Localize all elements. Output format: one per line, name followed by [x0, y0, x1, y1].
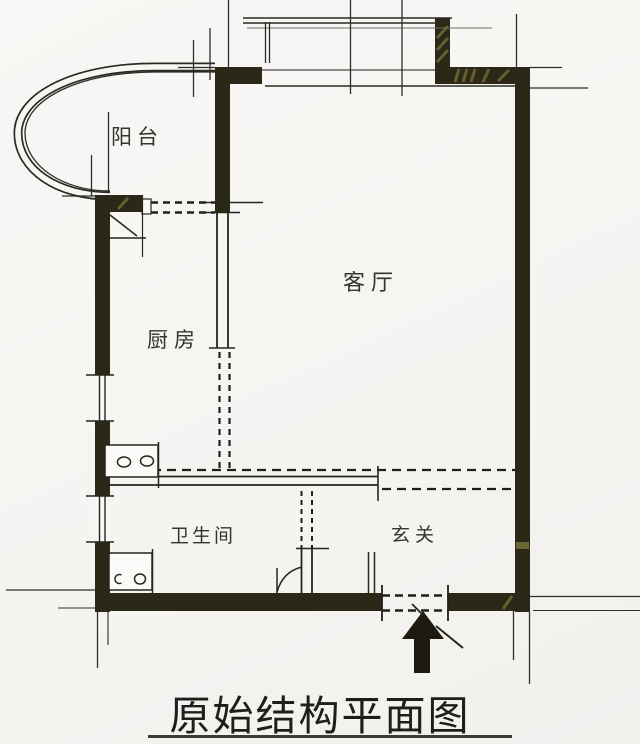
- wall-center-vertical: [215, 67, 230, 212]
- bathroom-door-swing: [277, 567, 302, 593]
- room-label-balcony: 阳台: [111, 127, 163, 148]
- bathroom-vanity: [109, 549, 153, 595]
- room-label-living-room: 客厅: [343, 272, 399, 294]
- wall-bottom-right: [448, 593, 530, 611]
- room-label-kitchen: 厨房: [147, 330, 201, 351]
- floor-plan-canvas: [0, 0, 640, 744]
- kitchen-counter: [105, 442, 159, 488]
- wall-bottom-left: [95, 593, 382, 611]
- floor-plan: 阳台 厨房 客厅 卫生间 玄关 原始结构平面图: [0, 0, 640, 744]
- dashed-openings: [142, 199, 515, 621]
- plan-title: 原始结构平面图: [0, 682, 640, 742]
- kitchen-window: [86, 375, 114, 421]
- interior-walls: [108, 203, 378, 594]
- wall-right: [515, 67, 530, 612]
- entrance-arrow-icon: [402, 604, 463, 673]
- room-label-bathroom: 卫生间: [170, 527, 236, 546]
- wall-center-top: [215, 67, 262, 84]
- wall-hatch: [118, 26, 529, 609]
- title-underline: [148, 735, 512, 738]
- room-label-entrance-hall: 玄关: [391, 526, 439, 545]
- bathroom-window: [86, 496, 114, 542]
